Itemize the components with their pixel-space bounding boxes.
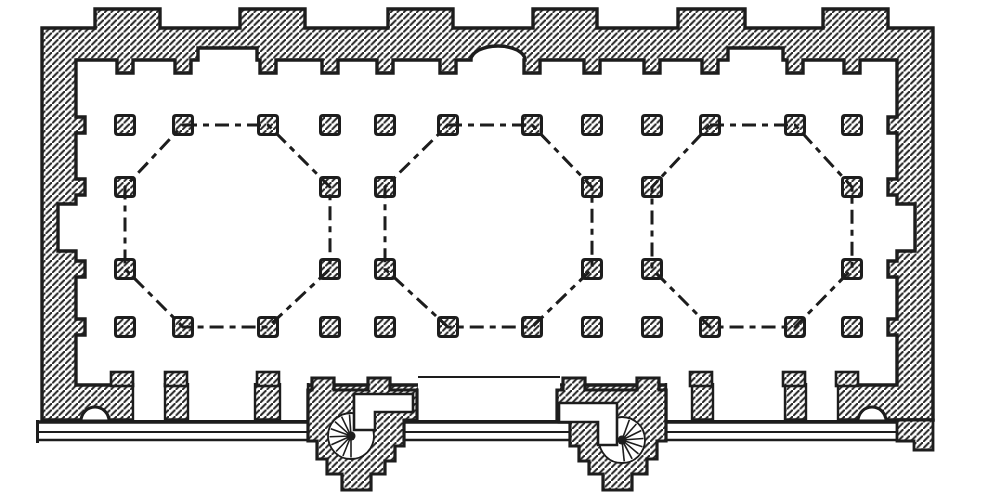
pier bbox=[643, 318, 662, 337]
plinth-arch bbox=[81, 407, 109, 421]
pier bbox=[321, 318, 340, 337]
doorway-opening bbox=[666, 379, 692, 420]
wall-pilaster bbox=[257, 372, 279, 386]
doorways bbox=[133, 372, 838, 420]
stair-tower-right bbox=[557, 378, 666, 490]
pier bbox=[116, 116, 135, 135]
outer-walls bbox=[42, 9, 933, 420]
plan-root bbox=[36, 9, 933, 490]
pier-grid bbox=[116, 116, 862, 337]
wall-pilaster bbox=[111, 372, 133, 386]
pier bbox=[843, 116, 862, 135]
pier bbox=[321, 116, 340, 135]
dome-outline-2 bbox=[385, 125, 592, 327]
doorway-opening bbox=[133, 379, 165, 420]
doorway-opening bbox=[280, 379, 308, 420]
wall-pilaster bbox=[690, 372, 712, 386]
pier bbox=[643, 116, 662, 135]
pier bbox=[583, 318, 602, 337]
pier bbox=[376, 318, 395, 337]
wall-pilaster bbox=[165, 372, 187, 386]
pier bbox=[843, 318, 862, 337]
wall-pilaster bbox=[783, 372, 805, 386]
stair-newel-dot bbox=[347, 432, 356, 441]
pier bbox=[116, 318, 135, 337]
masonry-wall-ring bbox=[42, 9, 933, 420]
floor-plan bbox=[0, 0, 1000, 498]
wall-pilaster bbox=[836, 372, 858, 386]
engraving-page bbox=[0, 0, 1000, 498]
stair-tower-left bbox=[308, 378, 417, 490]
dome-octagon-1 bbox=[125, 125, 330, 327]
entrance-portal-opening bbox=[418, 372, 560, 420]
stair-newel-dot bbox=[618, 436, 627, 445]
pier bbox=[583, 116, 602, 135]
pier bbox=[376, 116, 395, 135]
doorway-opening bbox=[713, 379, 785, 420]
dome-outline-3 bbox=[652, 125, 852, 327]
dome-outline-1 bbox=[125, 125, 330, 327]
dome-octagon-2 bbox=[385, 125, 592, 327]
doorway-opening bbox=[806, 379, 838, 420]
right-corner-foot bbox=[897, 420, 933, 450]
entrance-steps bbox=[36, 420, 933, 450]
plinth-arch bbox=[858, 407, 886, 421]
dome-octagon-3 bbox=[652, 125, 852, 327]
doorway-opening bbox=[188, 379, 255, 420]
